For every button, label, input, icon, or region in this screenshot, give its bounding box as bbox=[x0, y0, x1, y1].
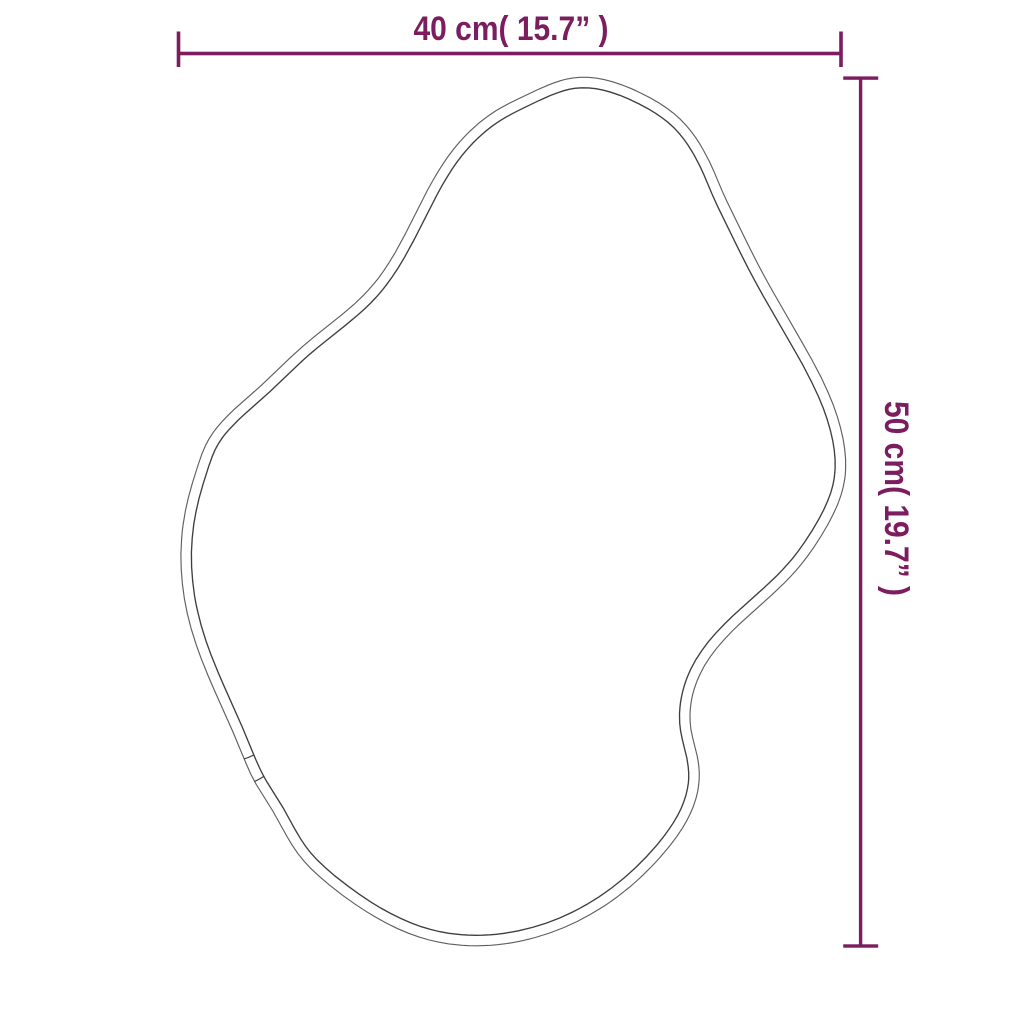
svg-text:40 cm( 15.7” ): 40 cm( 15.7” ) bbox=[413, 9, 608, 47]
svg-text:50 cm( 19.7” ): 50 cm( 19.7” ) bbox=[878, 401, 916, 596]
